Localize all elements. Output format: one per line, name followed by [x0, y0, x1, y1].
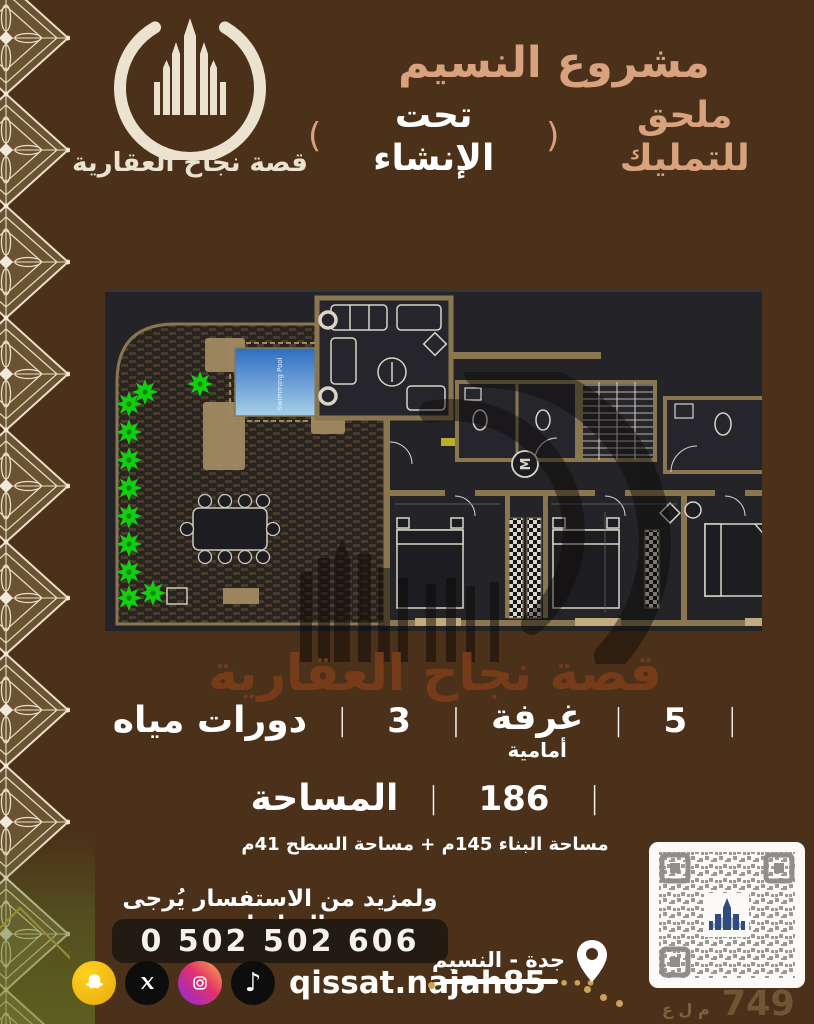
- living-room: [317, 298, 451, 418]
- location-block: جدة - النسيم: [432, 938, 642, 984]
- storage-room: [581, 382, 655, 460]
- unit-stats: دورات مياه | 3 | غرفة أمامية | 5 | المسا…: [75, 698, 775, 855]
- baths-label: دورات مياه: [113, 698, 307, 744]
- title-block: مشروع النسيم (تحت الإنشاء) ملحق للتمليك: [308, 38, 800, 180]
- baths-value: 3: [387, 698, 411, 744]
- gold-dot: [616, 1000, 623, 1007]
- construction-status: تحت الإنشاء: [331, 94, 536, 180]
- paren-close: ): [546, 116, 559, 157]
- gold-dot: [428, 982, 435, 989]
- watermark-text: قصة نجاح العقارية: [150, 644, 720, 702]
- logo-text: قصة نجاح العقارية: [72, 148, 308, 178]
- divider: |: [589, 776, 599, 822]
- corridor-wall: [451, 352, 601, 359]
- project-title: مشروع النسيم: [308, 38, 800, 90]
- decorative-border-pattern: [0, 0, 70, 1024]
- bathroom-right: [665, 398, 762, 472]
- subtitle-text: ملحق للتمليك: [569, 94, 800, 180]
- location-pin-icon: [575, 938, 609, 984]
- stats-row-1: دورات مياه | 3 | غرفة أمامية | 5 |: [75, 698, 775, 762]
- rooms-label: غرفة: [491, 698, 583, 738]
- area-value: 186: [478, 776, 549, 822]
- company-logo-icon: [80, 10, 300, 160]
- license-letters: م ل ع: [662, 1000, 710, 1019]
- bedroom-furniture: [397, 502, 762, 608]
- qr-code[interactable]: [649, 842, 805, 988]
- x-twitter-icon[interactable]: [125, 961, 169, 1005]
- elevator-symbol: M: [519, 458, 534, 471]
- elevator: M: [512, 451, 538, 477]
- location-underline: [440, 979, 558, 984]
- paren-open: (: [308, 116, 321, 157]
- company-logo: قصة نجاح العقارية: [72, 10, 308, 178]
- area-label: المساحة: [250, 776, 398, 822]
- pool-label: Swimming Pool: [276, 357, 284, 410]
- stats-row-2: المساحة | 186 |: [75, 776, 775, 822]
- gold-dot: [600, 994, 607, 1001]
- snapchat-icon[interactable]: [72, 961, 116, 1005]
- divider: |: [451, 698, 461, 744]
- divider: |: [613, 698, 623, 744]
- project-subtitle: (تحت الإنشاء) ملحق للتمليك: [308, 94, 800, 180]
- rooms-sublabel: أمامية: [507, 738, 566, 762]
- rooms-value: 5: [664, 698, 688, 744]
- real-estate-poster: قصة نجاح العقارية مشروع النسيم (تحت الإن…: [0, 0, 814, 1024]
- location-text: جدة - النسيم: [432, 948, 565, 972]
- divider: |: [727, 698, 737, 744]
- bathroom-middle: [457, 382, 577, 460]
- floor-plan: Swimming Pool: [105, 289, 762, 631]
- gold-dot: [584, 986, 591, 993]
- license-watermark: م ل ع 749: [662, 984, 795, 1024]
- instagram-icon[interactable]: [178, 961, 222, 1005]
- rooms-label-stack: غرفة أمامية: [491, 698, 583, 762]
- license-digits: 749: [722, 984, 795, 1024]
- phone-number[interactable]: 0 502 502 606: [112, 919, 448, 963]
- divider: |: [428, 776, 438, 822]
- floor-plan-drawing: Swimming Pool: [105, 292, 762, 628]
- divider: |: [337, 698, 347, 744]
- tiktok-icon[interactable]: ♪: [231, 961, 275, 1005]
